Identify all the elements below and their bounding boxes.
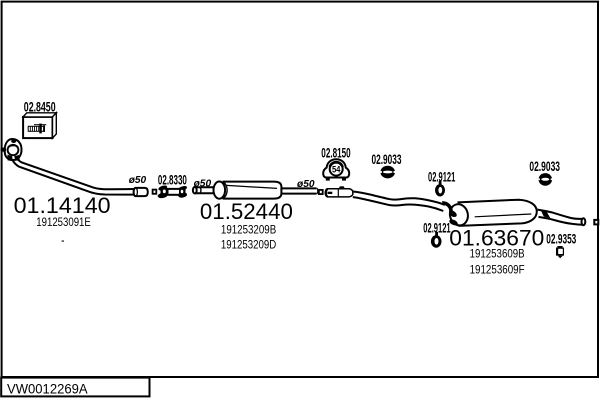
svg-text:01.63670: 01.63670 bbox=[449, 225, 544, 250]
svg-text:02.9033: 02.9033 bbox=[529, 158, 560, 174]
svg-text:02.9353: 02.9353 bbox=[546, 231, 576, 247]
svg-text:01.14140: 01.14140 bbox=[14, 193, 111, 218]
svg-text:191253209B: 191253209B bbox=[221, 225, 277, 237]
svg-text:ø50: ø50 bbox=[297, 178, 315, 190]
svg-text:02.9033: 02.9033 bbox=[372, 151, 402, 167]
svg-text:191253209D: 191253209D bbox=[221, 240, 276, 252]
svg-text:191253091E: 191253091E bbox=[36, 217, 91, 229]
svg-text:02.9121: 02.9121 bbox=[428, 169, 455, 185]
svg-text:ø50: ø50 bbox=[129, 174, 147, 186]
svg-text:191253609B: 191253609B bbox=[470, 249, 525, 261]
svg-text:02.8450: 02.8450 bbox=[24, 98, 56, 114]
svg-text:01.52440: 01.52440 bbox=[200, 199, 293, 224]
svg-text:191253609F: 191253609F bbox=[470, 265, 525, 277]
svg-text:VW0012269A: VW0012269A bbox=[7, 380, 88, 396]
svg-text:02.8330: 02.8330 bbox=[158, 172, 187, 188]
svg-text:54: 54 bbox=[332, 164, 341, 174]
